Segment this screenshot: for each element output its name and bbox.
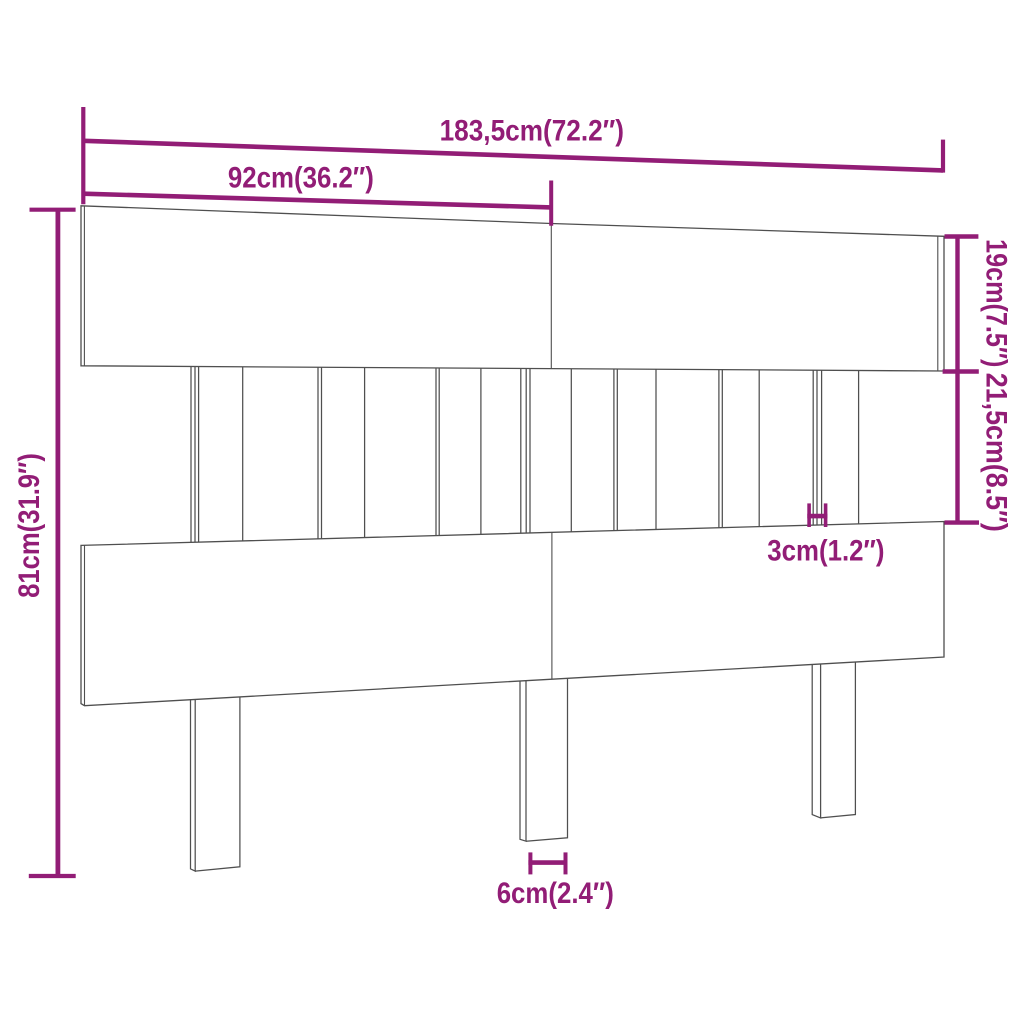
svg-text:81cm(31.9″): 81cm(31.9″): [13, 453, 46, 598]
svg-text:19cm(7.5″): 19cm(7.5″): [979, 239, 1012, 367]
svg-text:3cm(1.2″): 3cm(1.2″): [767, 535, 884, 568]
svg-text:6cm(2.4″): 6cm(2.4″): [497, 877, 614, 910]
svg-text:21,5cm(8.5″): 21,5cm(8.5″): [979, 373, 1012, 532]
svg-text:92cm(36.2″): 92cm(36.2″): [228, 162, 374, 195]
svg-text:183,5cm(72.2″): 183,5cm(72.2″): [440, 115, 624, 148]
